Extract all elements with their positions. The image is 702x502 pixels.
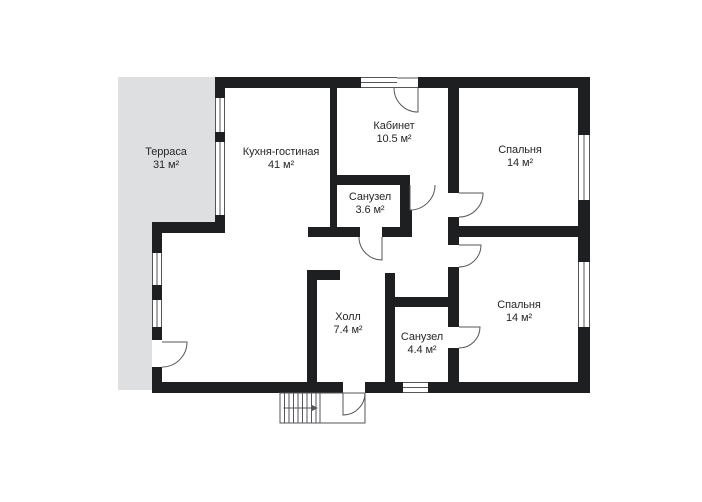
room-name: Терраса	[145, 146, 187, 159]
wall	[215, 132, 225, 142]
room-area: 4.4 м²	[401, 344, 443, 357]
wall	[215, 77, 225, 98]
wall	[578, 77, 590, 135]
wall	[152, 233, 162, 253]
wall	[152, 327, 162, 340]
door-arc	[343, 393, 365, 415]
window	[578, 262, 590, 327]
room-name: Спальня	[497, 299, 541, 312]
wall	[382, 227, 412, 237]
room-label-bedroom-bottom: Спальня 14 м²	[497, 299, 541, 325]
room-label-bedroom-top: Спальня 14 м²	[498, 144, 542, 170]
wall	[448, 88, 459, 193]
room-label-office: Кабинет 10.5 м²	[373, 120, 414, 146]
window	[152, 253, 162, 285]
room-area: 7.4 м²	[334, 324, 363, 337]
room-name: Спальня	[498, 144, 542, 157]
wall	[152, 382, 343, 393]
room-name: Кабинет	[373, 120, 414, 133]
room-area: 14 м²	[497, 312, 541, 325]
door-arc	[394, 88, 418, 112]
room-label-bathroom-ensuite: Санузел 4.4 м²	[401, 331, 443, 357]
room-label-terrace: Терраса 31 м²	[145, 146, 187, 172]
window	[215, 98, 225, 132]
window	[152, 300, 162, 327]
door-arc	[410, 185, 435, 210]
floor-plan-drawing	[0, 0, 702, 502]
wall	[215, 77, 361, 88]
wall	[330, 88, 337, 237]
window	[578, 135, 590, 200]
wall	[428, 382, 590, 393]
wall	[152, 367, 162, 393]
door-arc	[359, 237, 382, 260]
wall	[578, 200, 590, 262]
room-label-hall: Холл 7.4 м²	[334, 311, 363, 337]
window	[361, 77, 397, 88]
door-arc	[459, 245, 481, 267]
arrow-head	[311, 405, 318, 412]
door-arc	[459, 327, 480, 348]
wall	[458, 226, 578, 237]
wall	[308, 227, 360, 237]
wall	[448, 348, 459, 382]
wall	[448, 217, 459, 245]
floor-plan: Терраса 31 м² Кухня-гостиная 41 м² Кабин…	[0, 0, 702, 502]
room-area: 10.5 м²	[373, 133, 414, 146]
wall	[307, 270, 317, 382]
room-name: Санузел	[401, 331, 443, 344]
wall	[365, 382, 403, 393]
room-label-kitchen-living: Кухня-гостиная 41 м²	[243, 146, 319, 172]
room-label-bathroom-small: Санузел 3.6 м²	[349, 191, 391, 217]
room-name: Кухня-гостиная	[243, 146, 319, 159]
wall	[385, 273, 395, 382]
door-arc	[459, 193, 483, 217]
room-area: 41 м²	[243, 159, 319, 172]
wall	[152, 285, 162, 300]
room-name: Холл	[334, 311, 363, 324]
room-area: 14 м²	[498, 157, 542, 170]
wall	[152, 222, 225, 233]
window	[215, 142, 225, 215]
door-arc	[162, 342, 187, 367]
wall	[418, 77, 590, 88]
wall	[330, 175, 410, 185]
window	[403, 382, 428, 393]
room-area: 31 м²	[145, 159, 187, 172]
room-area: 3.6 м²	[349, 204, 391, 217]
door-threshold	[397, 78, 418, 88]
wall	[385, 297, 459, 307]
room-name: Санузел	[349, 191, 391, 204]
